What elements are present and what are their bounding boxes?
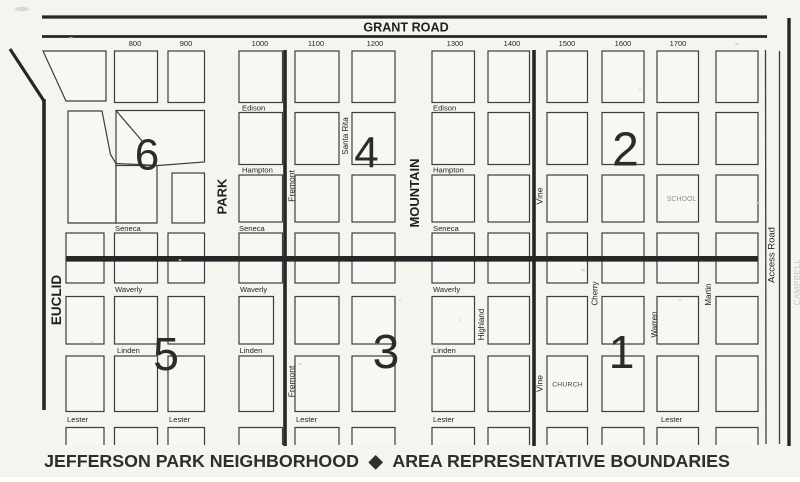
svg-text:EUCLID: EUCLID [49, 275, 64, 326]
svg-text:Hampton: Hampton [433, 166, 464, 175]
svg-text:Waverly: Waverly [433, 285, 460, 294]
svg-text:1100: 1100 [308, 39, 324, 48]
svg-text:Highland: Highland [477, 309, 486, 341]
svg-text:1700: 1700 [670, 39, 687, 48]
svg-text:Vine: Vine [535, 187, 545, 204]
svg-text:3: 3 [373, 326, 400, 379]
svg-text:Waverly: Waverly [115, 285, 142, 294]
svg-text:Lester: Lester [661, 415, 683, 424]
svg-text:Seneca: Seneca [115, 224, 142, 233]
svg-text:800: 800 [129, 39, 142, 48]
svg-text:Seneca: Seneca [433, 224, 460, 233]
svg-text:1400: 1400 [504, 39, 521, 48]
svg-text:6: 6 [135, 131, 159, 180]
svg-text:900: 900 [180, 39, 193, 48]
svg-text:Vine: Vine [535, 375, 545, 392]
svg-text:Access Road: Access Road [767, 227, 778, 283]
svg-text:Linden: Linden [433, 346, 456, 355]
svg-text:Edison: Edison [242, 104, 265, 113]
svg-text:Cherry: Cherry [591, 281, 600, 305]
svg-text:Lester: Lester [169, 415, 191, 424]
svg-text:Lester: Lester [67, 415, 89, 424]
svg-text:Santa Rita: Santa Rita [341, 117, 350, 155]
svg-text:1200: 1200 [367, 39, 384, 48]
svg-text:SCHOOL: SCHOOL [667, 196, 697, 203]
svg-text:Lester: Lester [296, 415, 318, 424]
svg-text:Fremont: Fremont [287, 170, 297, 202]
svg-text:1300: 1300 [447, 39, 464, 48]
svg-text:Waverly: Waverly [240, 285, 267, 294]
svg-text:GRANT ROAD: GRANT ROAD [363, 21, 448, 35]
svg-text:CHURCH: CHURCH [552, 382, 583, 389]
svg-text:Linden: Linden [240, 346, 263, 355]
svg-text:1500: 1500 [559, 39, 576, 48]
svg-text:PARK: PARK [215, 178, 230, 214]
svg-text:5: 5 [153, 328, 179, 380]
svg-text:Linden: Linden [117, 346, 140, 355]
svg-text:Seneca: Seneca [239, 224, 266, 233]
svg-text:JEFFERSON PARK NEIGHBORHOOD ◆: JEFFERSON PARK NEIGHBORHOOD ◆ AREA REPRE… [44, 451, 730, 471]
svg-text:1600: 1600 [615, 39, 632, 48]
svg-text:4: 4 [354, 129, 378, 178]
svg-text:Fremont: Fremont [287, 365, 297, 397]
svg-text:Hampton: Hampton [242, 166, 273, 175]
svg-text:1000: 1000 [252, 39, 269, 48]
svg-text:2: 2 [612, 124, 639, 177]
svg-text:1: 1 [609, 326, 635, 378]
svg-text:Warren: Warren [650, 312, 659, 338]
svg-text:Lester: Lester [433, 415, 455, 424]
svg-text:Edison: Edison [433, 104, 456, 113]
svg-text:CAMPBELL: CAMPBELL [793, 259, 800, 306]
svg-text:MOUNTAIN: MOUNTAIN [407, 158, 422, 227]
svg-text:Martin: Martin [704, 283, 713, 305]
